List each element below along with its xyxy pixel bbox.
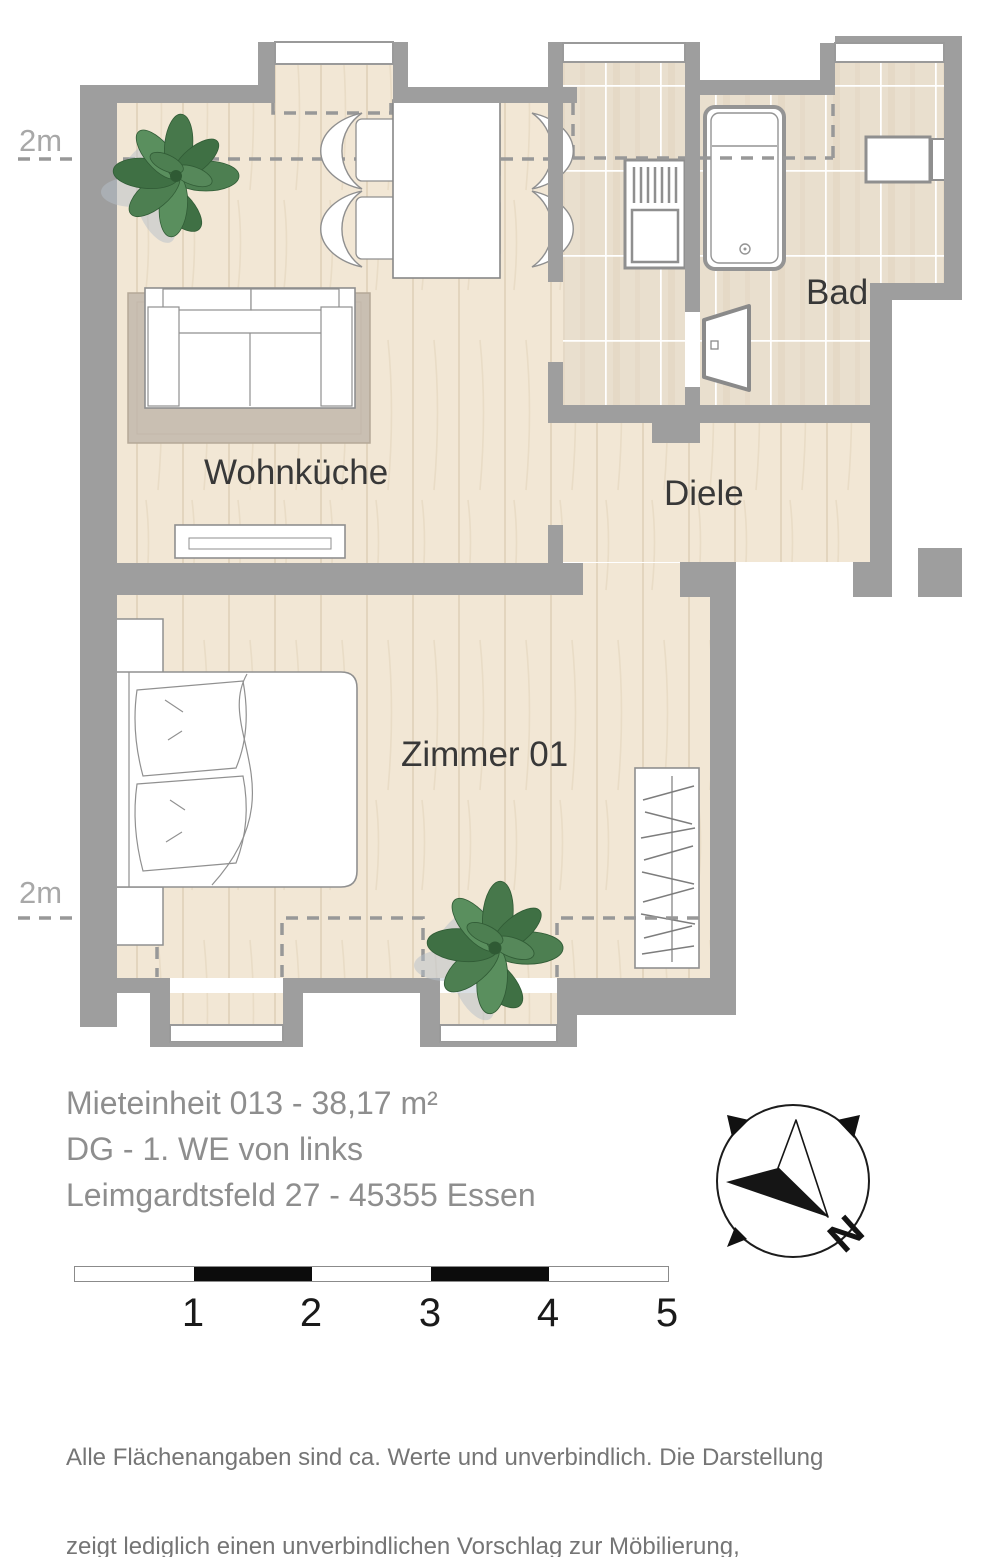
floorplan-page: Wohnküche Diele Bad Zimmer 01 2m 2m Miet… (0, 0, 1001, 1557)
disclaimer-block: Alle Flächenangaben sind ca. Werte und u… (66, 1384, 823, 1557)
room-label-hallway: Diele (664, 474, 744, 514)
scale-segment (312, 1267, 431, 1281)
unit-info-block: Mieteinheit 013 - 38,17 m² DG - 1. WE vo… (66, 1080, 536, 1218)
scale-segment (75, 1267, 194, 1281)
unit-info-line-3: Leimgardtsfeld 27 - 45355 Essen (66, 1172, 536, 1218)
window-sills (170, 1042, 557, 1047)
room-label-bedroom: Zimmer 01 (401, 735, 568, 775)
scale-segment (549, 1267, 668, 1281)
window (275, 42, 393, 64)
disclaimer-line-2: zeigt lediglich einen unverbindlichen Vo… (66, 1532, 823, 1557)
washbasin (866, 137, 945, 182)
room-label-bathroom: Bad (806, 273, 868, 313)
washing-machine (625, 160, 685, 268)
bathroom-door (704, 306, 749, 390)
unit-info-line-2: DG - 1. WE von links (66, 1126, 536, 1172)
wardrobe (635, 768, 699, 968)
scale-tick-4: 4 (537, 1291, 559, 1336)
unit-info-line-1: Mieteinheit 013 - 38,17 m² (66, 1080, 536, 1126)
window (170, 1025, 283, 1042)
room-label-living-kitchen: Wohnküche (204, 453, 388, 493)
window (835, 43, 944, 62)
bathtub (705, 107, 784, 269)
floorplan-drawing (0, 0, 1001, 1557)
scale-tick-3: 3 (419, 1291, 441, 1336)
height-marker-bottom: 2m (19, 875, 62, 911)
window (440, 1025, 557, 1042)
height-marker-top: 2m (19, 123, 62, 159)
disclaimer-line-1: Alle Flächenangaben sind ca. Werte und u… (66, 1443, 823, 1473)
scale-segment (194, 1267, 313, 1281)
nightstand (116, 619, 163, 673)
scale-tick-2: 2 (300, 1291, 322, 1336)
nightstand (116, 887, 163, 945)
scale-bar (74, 1266, 669, 1282)
dining-table (393, 100, 500, 278)
scale-segment (431, 1267, 550, 1281)
sofa (145, 288, 355, 408)
scale-tick-1: 1 (182, 1291, 204, 1336)
window (563, 43, 685, 62)
scale-tick-5: 5 (656, 1291, 678, 1336)
sideboard (175, 525, 345, 558)
